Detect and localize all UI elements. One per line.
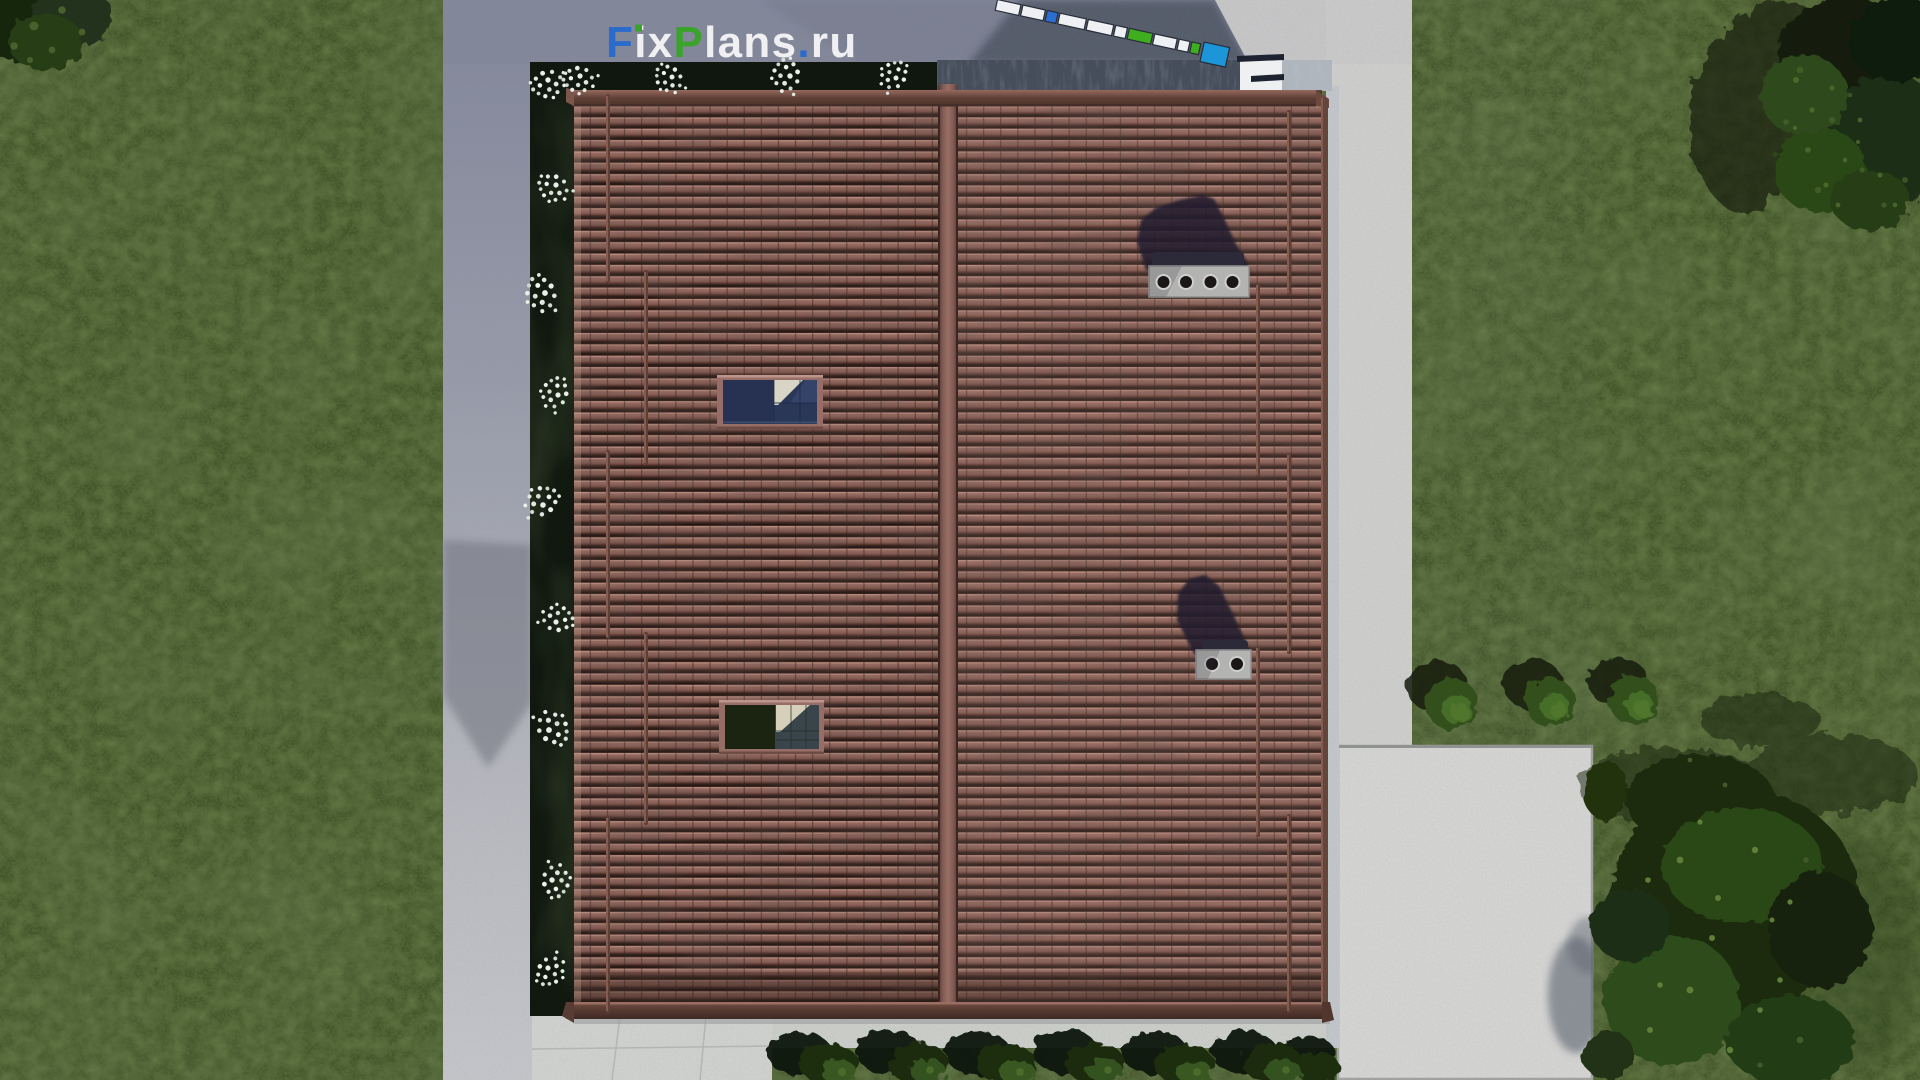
svg-text:FixPlans.ru: FixPlans.ru	[606, 18, 858, 67]
